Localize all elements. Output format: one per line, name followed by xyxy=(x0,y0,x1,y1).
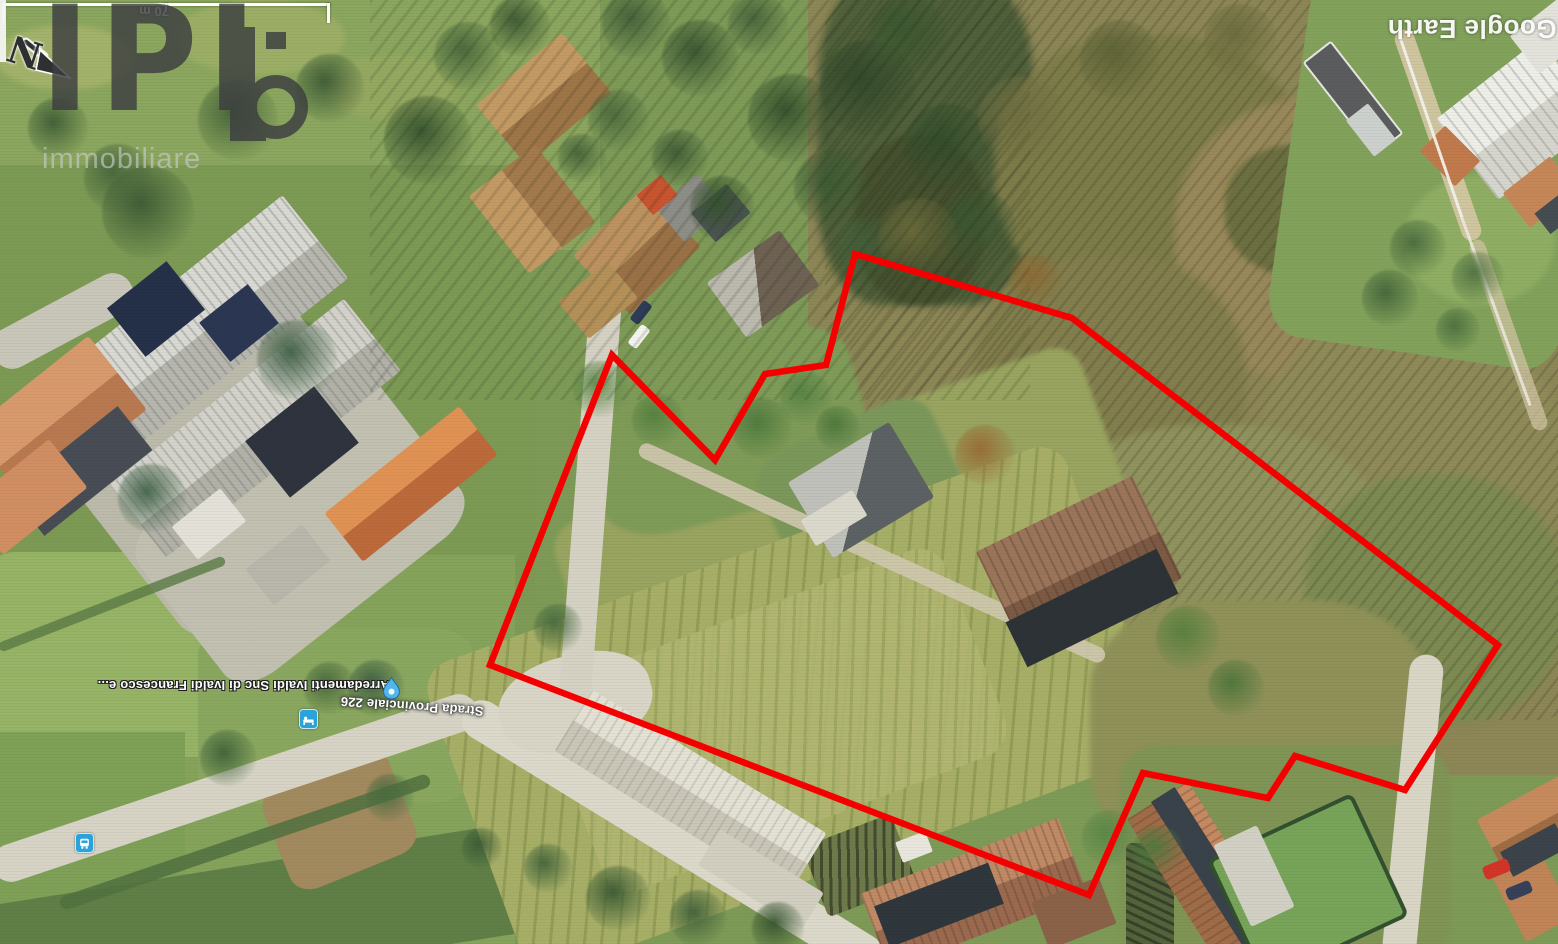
ipi-logo-key-icon xyxy=(230,27,288,141)
bed-glyph xyxy=(302,713,315,726)
ipi-logo-subtext: immobiliare xyxy=(42,143,201,176)
google-earth-canvas[interactable]: Arredamenti Ivaldi Snc di Ivaldi Frances… xyxy=(0,0,1558,944)
transit-poi-icon[interactable] xyxy=(75,833,94,853)
bus-glyph xyxy=(78,837,91,850)
lodging-poi-icon[interactable] xyxy=(299,709,318,729)
google-earth-watermark: Google Earth xyxy=(1384,13,1558,44)
business-label: Arredamenti Ivaldi Snc di Ivaldi Frances… xyxy=(98,678,390,693)
scale-bar-tick-right xyxy=(327,3,330,23)
ipi-logo: IPI immobiliare xyxy=(40,25,300,175)
